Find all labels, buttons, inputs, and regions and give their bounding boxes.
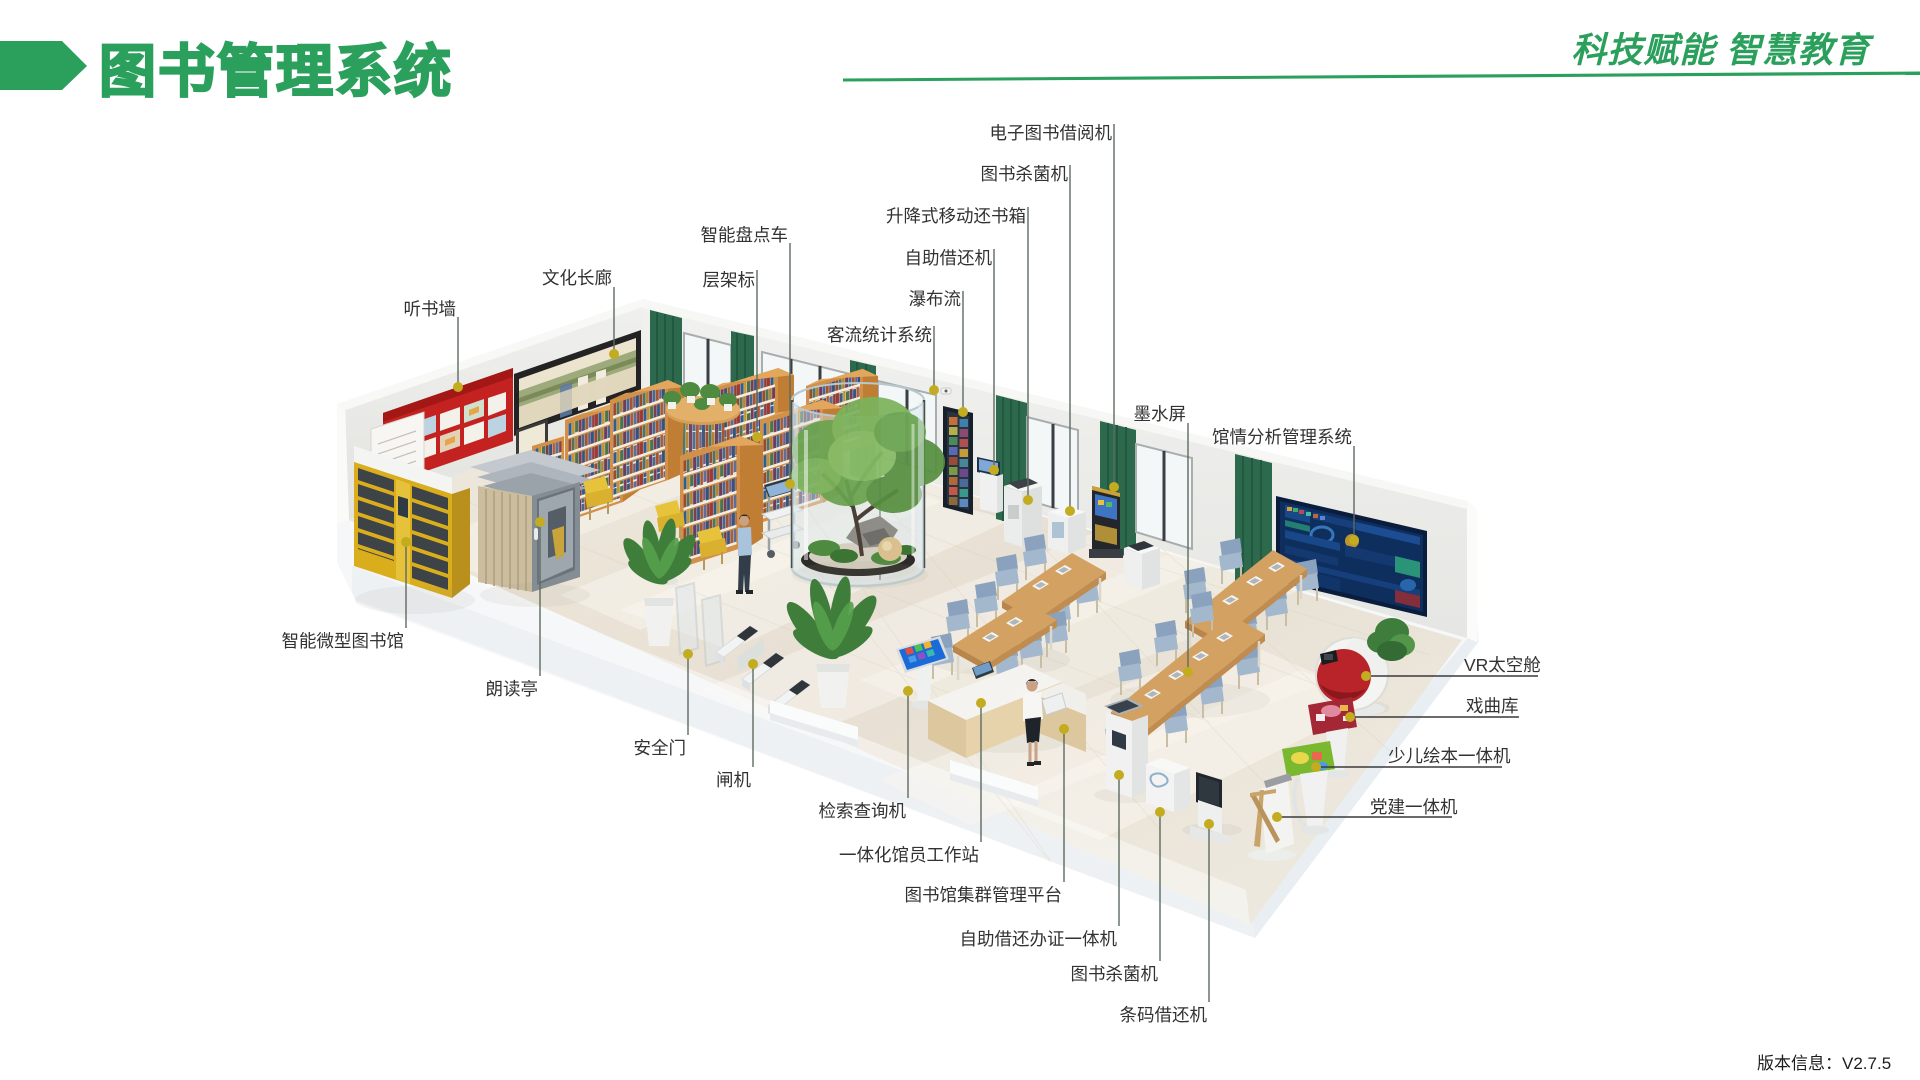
svg-text:一体化馆员工作站: 一体化馆员工作站 [839,845,979,865]
svg-text:智能盘点车: 智能盘点车 [701,225,789,245]
svg-text:层架标: 层架标 [703,270,756,290]
svg-text:党建一体机: 党建一体机 [1370,797,1458,817]
svg-text:戏曲库: 戏曲库 [1466,696,1519,716]
svg-text:客流统计系统: 客流统计系统 [827,325,932,345]
svg-text:条码借还机: 条码借还机 [1120,1005,1208,1025]
svg-text:朗读亭: 朗读亭 [486,679,539,699]
svg-text:智能微型图书馆: 智能微型图书馆 [282,631,405,651]
svg-text:少儿绘本一体机: 少儿绘本一体机 [1388,746,1511,766]
svg-text:自助借还机: 自助借还机 [905,248,993,268]
svg-text:馆情分析管理系统: 馆情分析管理系统 [1212,427,1352,447]
svg-text:听书墙: 听书墙 [404,299,457,319]
svg-text:文化长廊: 文化长廊 [542,268,612,288]
svg-text:图书杀菌机: 图书杀菌机 [1071,964,1159,984]
svg-text:VR太空舱: VR太空舱 [1464,655,1541,675]
svg-text:电子图书借阅机: 电子图书借阅机 [990,123,1113,143]
svg-text:图书馆集群管理平台: 图书馆集群管理平台 [905,885,1063,905]
svg-text:安全门: 安全门 [634,738,687,758]
svg-text:图书杀菌机: 图书杀菌机 [981,164,1069,184]
svg-text:墨水屏: 墨水屏 [1134,404,1187,424]
svg-text:瀑布流: 瀑布流 [909,289,962,309]
svg-text:升降式移动还书箱: 升降式移动还书箱 [886,206,1026,226]
svg-text:自助借还办证一体机: 自助借还办证一体机 [960,929,1118,949]
svg-text:检索查询机: 检索查询机 [819,801,907,821]
svg-text:闸机: 闸机 [716,770,751,790]
